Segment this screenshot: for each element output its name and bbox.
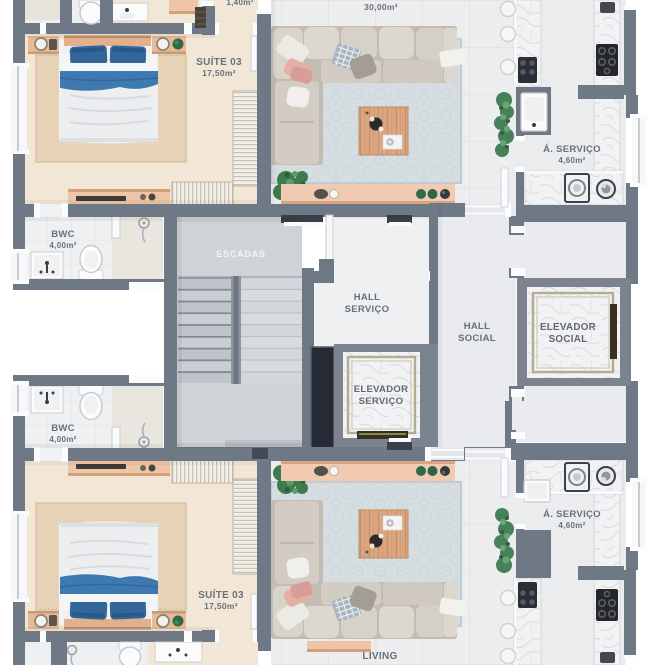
- svg-text:Á. SERVIÇO: Á. SERVIÇO: [543, 509, 601, 520]
- svg-text:HALL: HALL: [464, 321, 491, 332]
- svg-text:ELEVADOR: ELEVADOR: [354, 384, 408, 395]
- svg-text:17,50m²: 17,50m²: [202, 68, 236, 78]
- svg-text:SERVIÇO: SERVIÇO: [345, 304, 390, 315]
- svg-text:4,00m²: 4,00m²: [49, 435, 76, 444]
- svg-text:LIVING: LIVING: [362, 651, 397, 662]
- svg-text:SUÍTE 03: SUÍTE 03: [198, 588, 244, 601]
- svg-text:BWC: BWC: [51, 229, 75, 240]
- svg-text:1,40m²: 1,40m²: [226, 0, 253, 7]
- svg-text:SOCIAL: SOCIAL: [549, 334, 588, 345]
- svg-text:SOCIAL: SOCIAL: [458, 333, 496, 344]
- svg-text:Á. SERVIÇO: Á. SERVIÇO: [543, 144, 601, 155]
- svg-text:BWC: BWC: [51, 423, 75, 434]
- svg-text:ELEVADOR: ELEVADOR: [540, 322, 596, 333]
- svg-text:4,60m²: 4,60m²: [558, 156, 585, 165]
- svg-text:HALL: HALL: [354, 292, 381, 303]
- svg-text:SUÍTE 03: SUÍTE 03: [196, 55, 242, 68]
- svg-text:ESCADAS: ESCADAS: [216, 249, 266, 259]
- svg-text:4,60m²: 4,60m²: [558, 521, 585, 530]
- svg-text:30,00m²: 30,00m²: [364, 2, 398, 12]
- svg-text:17,50m²: 17,50m²: [204, 601, 238, 611]
- svg-text:4,00m²: 4,00m²: [49, 241, 76, 250]
- svg-text:SERVIÇO: SERVIÇO: [359, 396, 404, 407]
